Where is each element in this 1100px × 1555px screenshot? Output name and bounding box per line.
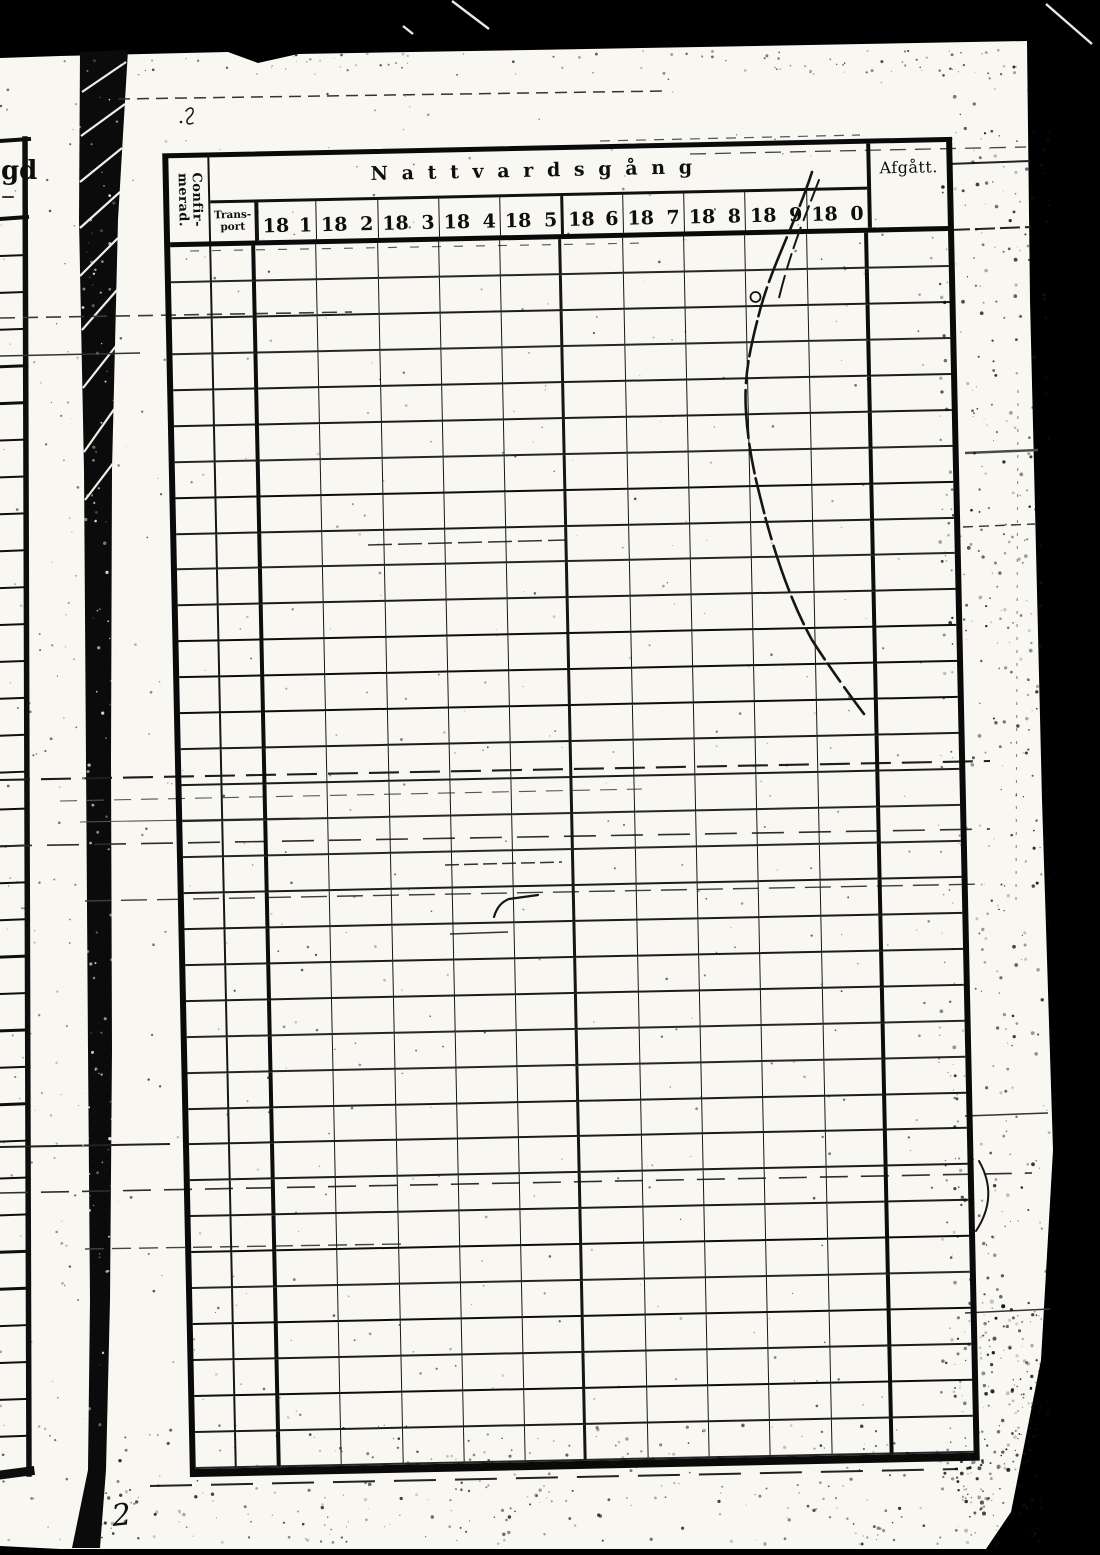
grid-cell — [272, 1035, 334, 1072]
fragment-row-line — [0, 403, 27, 404]
noise-dot — [982, 1511, 986, 1515]
noise-dot — [778, 52, 780, 54]
noise-dot — [50, 1114, 52, 1116]
noise-dot — [503, 1539, 506, 1542]
noise-dot — [994, 154, 998, 158]
noise-dot — [101, 1537, 103, 1539]
grid-cell — [260, 460, 322, 497]
noise-dot — [1010, 834, 1013, 837]
grid-cell — [318, 315, 380, 352]
noise-dot — [194, 1495, 197, 1498]
grid-cell — [327, 746, 389, 783]
noise-dot — [1030, 1528, 1034, 1532]
grid-cell — [885, 1021, 966, 1059]
column-header-year-3: 183 — [377, 199, 439, 238]
grid-cell — [881, 842, 962, 880]
noise-dot — [969, 1516, 971, 1518]
grid-cell — [891, 1345, 972, 1383]
fragment-row-line — [0, 661, 27, 662]
grid-cell — [879, 734, 960, 772]
grid-cell — [454, 959, 516, 996]
noise-dot — [1032, 130, 1035, 133]
noise-dot — [115, 915, 116, 916]
grid-cell — [885, 1057, 966, 1095]
grid-cell — [338, 1249, 400, 1286]
communion-record-table: Confir- merad. Nattvardsgång Afgått. Tra… — [162, 137, 980, 1477]
noise-dot — [999, 1091, 1002, 1094]
noise-dot — [1014, 1498, 1015, 1499]
grid-cell — [754, 665, 816, 702]
noise-dot — [595, 53, 598, 56]
noise-dot — [1041, 310, 1043, 312]
grid-cell — [393, 960, 455, 997]
grid-cell — [690, 523, 752, 560]
noise-dot — [221, 1541, 224, 1544]
noise-dot — [736, 134, 738, 136]
noise-dot — [790, 65, 792, 67]
noise-dot — [309, 58, 312, 61]
noise-dot — [185, 58, 187, 60]
grid-cell — [461, 1282, 523, 1319]
grid-cell — [766, 1204, 828, 1241]
noise-dot — [64, 60, 66, 62]
noise-dot — [681, 1527, 684, 1530]
grid-cell — [689, 487, 751, 524]
noise-dot — [973, 452, 976, 455]
grid-cell — [188, 1109, 230, 1146]
year-prefix: 18 — [382, 212, 409, 235]
grid-cell — [506, 527, 568, 564]
fragment-header-label: gd — [1, 156, 37, 186]
noise-dot — [993, 1253, 996, 1256]
noise-dot — [1035, 819, 1037, 821]
noise-dot — [990, 1462, 992, 1464]
noise-dot — [169, 1442, 170, 1443]
noise-dot — [1015, 283, 1018, 286]
noise-dot — [57, 1397, 59, 1399]
grid-cell — [443, 420, 505, 457]
noise-dot — [988, 1253, 989, 1254]
noise-dot — [150, 691, 153, 694]
grid-cell — [579, 1064, 641, 1101]
noise-dot — [844, 62, 846, 64]
noise-dot — [1016, 1484, 1019, 1487]
transport-line1: Trans- — [214, 209, 252, 222]
grid-cell — [570, 633, 632, 670]
noise-dot — [1028, 1402, 1030, 1404]
noise-dot — [996, 1533, 1000, 1537]
noise-dot — [565, 1500, 567, 1502]
noise-dot — [536, 1495, 538, 1497]
noise-dot — [1018, 1433, 1020, 1435]
grid-cell — [517, 1030, 579, 1067]
noise-dot — [983, 1384, 986, 1387]
noise-dot — [787, 1517, 788, 1518]
noise-dot — [1013, 210, 1016, 213]
noise-dot — [1028, 505, 1031, 508]
noise-dot — [16, 508, 19, 511]
noise-dot — [971, 409, 974, 412]
noise-dot — [650, 1538, 653, 1541]
grid-cell — [233, 1287, 278, 1324]
noise-dot — [1017, 1426, 1020, 1429]
noise-dot — [995, 1178, 998, 1181]
noise-dot — [754, 1494, 755, 1495]
grid-cell — [764, 1132, 826, 1169]
noise-dot — [58, 821, 61, 824]
noise-dot — [88, 242, 89, 243]
fragment-row-line — [0, 845, 27, 846]
noise-dot — [343, 1494, 344, 1495]
noise-dot — [1031, 1313, 1034, 1316]
noise-dot — [965, 205, 966, 206]
noise-dot — [1044, 376, 1048, 380]
noise-dot — [1032, 775, 1034, 777]
noise-dot — [110, 1353, 112, 1355]
grid-cell — [639, 1027, 701, 1064]
noise-dot — [1046, 1402, 1048, 1404]
noise-dot — [117, 260, 119, 262]
grid-cell — [388, 709, 450, 746]
noise-dot — [980, 1357, 983, 1360]
noise-dot — [597, 1513, 600, 1516]
grid-cell — [272, 1071, 334, 1108]
noise-dot — [117, 482, 118, 483]
noise-dot — [1027, 1302, 1029, 1304]
noise-dot — [981, 1371, 985, 1375]
noise-dot — [100, 422, 102, 424]
noise-dot — [990, 1477, 993, 1480]
noise-dot — [871, 69, 874, 72]
noise-dot — [346, 1541, 348, 1543]
noise-dot — [513, 1473, 516, 1476]
fragment-row-line — [0, 1399, 27, 1400]
noise-dot — [994, 1543, 998, 1547]
noise-dot — [193, 1536, 194, 1537]
noise-dot — [966, 639, 967, 640]
noise-dot — [992, 181, 993, 182]
noise-dot — [1028, 629, 1031, 632]
grid-cell — [387, 673, 449, 710]
noise-dot — [990, 1389, 994, 1393]
grid-cell — [823, 1023, 885, 1060]
noise-dot — [1014, 258, 1018, 262]
grid-cell — [458, 1139, 520, 1176]
grid-cell — [708, 1385, 770, 1422]
noise-dot — [1028, 729, 1030, 731]
noise-dot — [118, 1459, 121, 1462]
noise-dot — [983, 1407, 984, 1408]
grid-cell — [818, 772, 880, 809]
noise-dot — [1023, 1359, 1026, 1362]
grid-cell — [222, 784, 267, 821]
grid-cell — [515, 922, 577, 959]
noise-dot — [26, 515, 29, 518]
noise-dot — [1021, 1394, 1023, 1396]
noise-dot — [1045, 651, 1047, 653]
grid-cell — [827, 1203, 889, 1240]
grid-cell — [395, 1068, 457, 1105]
fragment-row-line — [0, 587, 27, 588]
noise-dot — [991, 899, 993, 901]
noise-dot — [985, 752, 987, 754]
noise-dot — [69, 1265, 71, 1267]
grid-cell — [814, 592, 876, 629]
noise-dot — [38, 1425, 41, 1428]
noise-dot — [29, 702, 31, 704]
noise-dot — [34, 930, 35, 931]
noise-dot — [678, 1483, 679, 1484]
noise-dot — [1045, 199, 1047, 201]
grid-cell — [811, 448, 873, 485]
noise-dot — [1001, 1304, 1005, 1308]
noise-dot — [958, 71, 959, 72]
noise-dot — [1036, 968, 1040, 972]
noise-dot — [1031, 346, 1033, 348]
noise-dot — [1047, 1412, 1050, 1415]
noise-dot — [1008, 1345, 1012, 1349]
noise-dot — [20, 1235, 22, 1237]
grid-cell — [625, 344, 687, 381]
noise-dot — [952, 69, 953, 70]
noise-dot — [333, 58, 334, 59]
noise-dot — [112, 201, 115, 204]
noise-dot — [56, 1142, 58, 1144]
gutter-hatch-lines — [80, 62, 126, 500]
noise-dot — [1016, 1386, 1017, 1387]
grid-cell — [215, 425, 260, 462]
grid-cell — [888, 1165, 969, 1203]
noise-dot — [1012, 1015, 1015, 1018]
noise-dot — [960, 536, 961, 537]
noise-dot — [798, 1492, 799, 1493]
noise-dot — [406, 55, 409, 58]
noise-dot — [1028, 1448, 1031, 1451]
grid-cell — [332, 962, 394, 999]
noise-dot — [116, 1200, 119, 1203]
year-prefix: 18 — [321, 214, 348, 237]
noise-dot — [211, 1493, 214, 1496]
grid-cell — [580, 1136, 642, 1173]
noise-dot — [296, 61, 297, 62]
noise-dot — [919, 67, 921, 69]
grid-cell — [384, 529, 446, 566]
noise-dot — [654, 1496, 657, 1499]
noise-dot — [578, 56, 581, 59]
noise-dot — [744, 69, 747, 72]
fragment-row-line — [0, 550, 27, 551]
noise-dot — [993, 1184, 996, 1187]
noise-dot — [995, 1317, 998, 1320]
noise-dot — [1024, 944, 1027, 947]
noise-dot — [321, 1506, 324, 1509]
noise-dot — [979, 596, 983, 600]
grid-cell — [336, 1177, 398, 1214]
noise-dot — [197, 60, 199, 62]
noise-dot — [1045, 220, 1048, 223]
noise-dot — [117, 464, 120, 467]
noise-dot — [305, 1538, 306, 1539]
noise-dot — [955, 132, 956, 133]
noise-dot — [93, 273, 95, 275]
noise-dot — [936, 1543, 938, 1545]
noise-dot — [1035, 1382, 1037, 1384]
noise-dot — [981, 555, 984, 558]
noise-dot — [964, 127, 967, 130]
noise-dot — [96, 931, 98, 933]
grid-cell — [226, 964, 271, 1001]
noise-dot — [997, 1541, 1000, 1544]
noise-dot — [960, 52, 961, 53]
noise-dot — [1009, 1153, 1011, 1155]
noise-dot — [893, 1539, 895, 1541]
grid-cell — [450, 779, 512, 816]
grid-cell — [762, 1024, 824, 1061]
grid-cell — [175, 498, 217, 535]
grid-cell — [236, 1431, 281, 1468]
noise-dot — [1022, 1397, 1024, 1399]
noise-dot — [1047, 131, 1049, 133]
grid-cell — [216, 497, 261, 534]
noise-dot — [1001, 1211, 1003, 1213]
noise-dot — [92, 284, 94, 286]
noise-dot — [159, 1085, 161, 1087]
noise-dot — [999, 618, 1002, 621]
fragment-row-line — [0, 1104, 27, 1105]
noise-dot — [114, 1140, 117, 1143]
noise-dot — [100, 1032, 102, 1034]
noise-dot — [1027, 89, 1029, 91]
noise-dot — [980, 311, 984, 315]
noise-dot — [295, 53, 298, 56]
noise-dot — [1042, 293, 1046, 297]
noise-dot — [1007, 894, 1010, 897]
noise-dot — [401, 67, 403, 69]
grid-cell — [269, 891, 331, 928]
noise-dot — [1023, 1393, 1025, 1395]
grid-cell — [448, 672, 510, 709]
noise-dot — [967, 276, 968, 277]
noise-dot — [105, 521, 106, 522]
grid-cell — [225, 892, 270, 929]
noise-dot — [41, 1092, 43, 1094]
grid-cell — [878, 698, 959, 736]
noise-dot — [109, 1480, 112, 1483]
noise-dot — [1036, 1314, 1038, 1316]
noise-dot — [1019, 473, 1023, 477]
noise-dot — [1003, 166, 1004, 167]
noise-dot — [1015, 1354, 1018, 1357]
noise-dot — [69, 517, 71, 519]
noise-dot — [461, 1482, 463, 1484]
noise-dot — [508, 1515, 511, 1518]
noise-dot — [1028, 436, 1031, 439]
year-prefix: 18 — [443, 211, 470, 234]
noise-dot — [809, 70, 812, 73]
column-header-confirmed: Confir- merad. — [168, 157, 211, 242]
noise-dot — [82, 1144, 84, 1146]
grid-cell — [510, 706, 572, 743]
grid-cell — [890, 1273, 971, 1311]
noise-dot — [1005, 1028, 1006, 1029]
noise-dot — [92, 446, 95, 449]
noise-dot — [80, 772, 82, 774]
noise-dot — [1024, 233, 1026, 235]
noise-dot — [979, 285, 981, 287]
noise-dot — [972, 390, 973, 391]
grid-cell — [390, 817, 452, 854]
grid-cell — [177, 570, 219, 607]
noise-dot — [978, 1214, 981, 1217]
noise-dot — [283, 1522, 285, 1524]
noise-dot — [920, 1507, 922, 1509]
noise-dot — [877, 1526, 880, 1529]
noise-dot — [990, 1300, 994, 1304]
noise-dot — [145, 827, 148, 830]
noise-dot — [1040, 63, 1041, 64]
grid-cell — [755, 701, 817, 738]
fragment-row-line — [0, 1178, 27, 1179]
grid-cell — [439, 240, 501, 277]
noise-dot — [0, 1351, 2, 1354]
noise-dot — [68, 602, 70, 604]
noise-dot — [1012, 1512, 1015, 1515]
grid-cell — [277, 1286, 339, 1323]
noise-dot — [39, 633, 41, 635]
noise-dot — [970, 763, 974, 767]
noise-dot — [988, 507, 990, 509]
noise-dot — [213, 1500, 214, 1501]
noise-dot — [1010, 1221, 1011, 1222]
grid-cell — [635, 811, 697, 848]
noise-dot — [966, 382, 969, 385]
noise-dot — [9, 877, 11, 879]
noise-dot — [6, 928, 7, 929]
grid-cell — [335, 1105, 397, 1142]
noise-dot — [1030, 642, 1032, 644]
noise-dot — [53, 878, 55, 880]
noise-dot — [719, 1513, 721, 1515]
noise-dot — [1006, 420, 1008, 422]
grid-cell — [191, 1217, 233, 1254]
grid-cell — [273, 1107, 335, 1144]
noise-dot — [984, 1392, 988, 1396]
noise-dot — [1029, 455, 1032, 458]
grid-cell — [324, 602, 386, 639]
noise-dot — [1003, 1467, 1006, 1470]
noise-dot — [1043, 149, 1046, 152]
noise-dot — [507, 1531, 511, 1535]
noise-dot — [815, 1508, 817, 1510]
noise-dot — [994, 88, 995, 89]
noise-dot — [673, 1482, 676, 1485]
noise-dot — [1001, 1455, 1003, 1457]
noise-dot — [1022, 1519, 1025, 1522]
noise-dot — [102, 1352, 104, 1354]
noise-dot — [368, 1508, 369, 1509]
noise-dot — [903, 1474, 906, 1477]
noise-dot — [101, 712, 104, 715]
page-number-annotation: 2 — [110, 1497, 133, 1534]
grid-cell — [257, 352, 319, 389]
grid-cell — [447, 636, 509, 673]
noise-dot — [67, 351, 69, 353]
noise-dot — [69, 143, 71, 145]
noise-dot — [672, 91, 674, 93]
noise-dot — [16, 1251, 18, 1253]
grid-cell — [391, 852, 453, 889]
noise-dot — [340, 54, 343, 57]
